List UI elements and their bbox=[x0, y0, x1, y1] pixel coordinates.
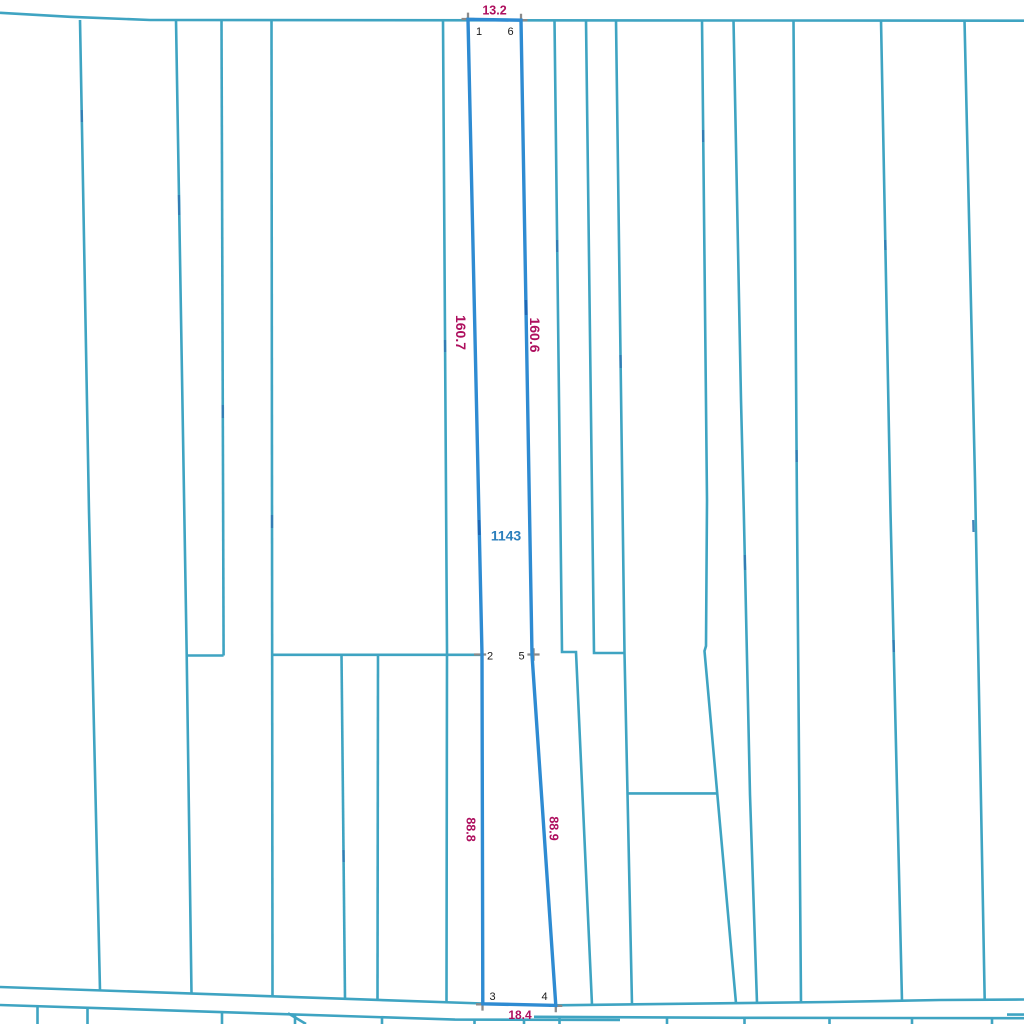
svg-text:13.2: 13.2 bbox=[482, 3, 506, 17]
svg-text:1: 1 bbox=[476, 26, 482, 38]
svg-text:6: 6 bbox=[507, 26, 513, 38]
svg-text:3: 3 bbox=[489, 991, 495, 1003]
svg-text:1143: 1143 bbox=[491, 528, 522, 544]
svg-text:88.9: 88.9 bbox=[547, 816, 561, 840]
svg-text:5: 5 bbox=[518, 651, 524, 663]
svg-text:4: 4 bbox=[541, 991, 547, 1003]
svg-text:18.4: 18.4 bbox=[508, 1008, 532, 1022]
svg-text:88.8: 88.8 bbox=[464, 817, 478, 841]
svg-text:160.6: 160.6 bbox=[527, 317, 543, 352]
svg-text:2: 2 bbox=[487, 651, 493, 663]
svg-text:160.7: 160.7 bbox=[453, 315, 469, 350]
